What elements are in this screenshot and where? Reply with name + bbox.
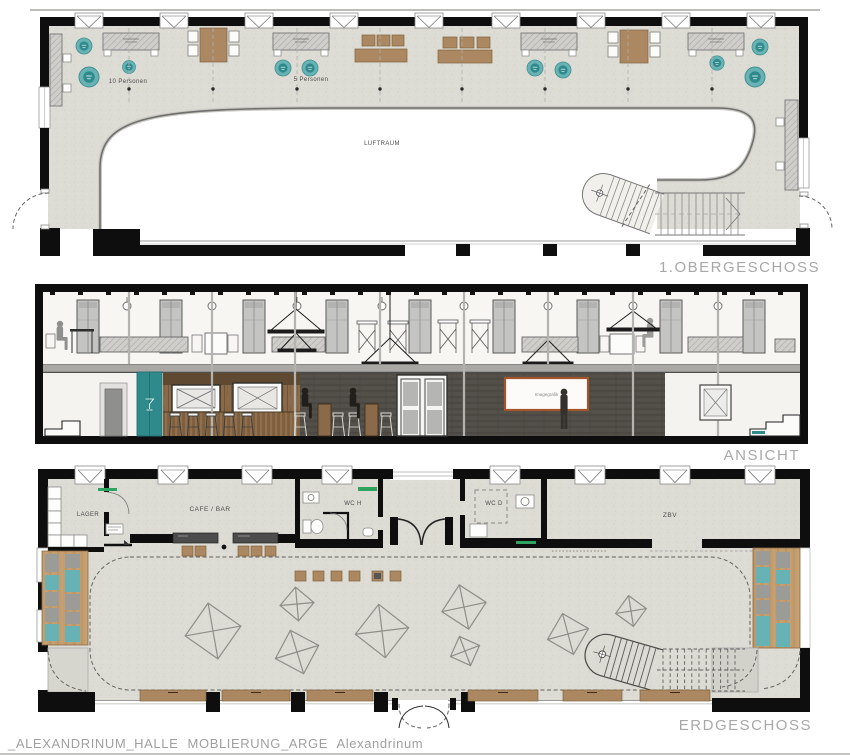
bench-unit-west [42, 551, 88, 645]
door-swing [13, 193, 49, 229]
teal-door [137, 372, 162, 436]
urinal [363, 528, 373, 536]
room-label-lager: LAGER [77, 512, 100, 518]
drawing-canvas: 10 Personen 5 Personen LUFTRAUM 1.OBERGE… [0, 0, 850, 755]
bench-unit-east [753, 548, 800, 648]
room-label-zbv: ZBV [663, 512, 677, 519]
sink [516, 495, 534, 508]
bar-counter [173, 533, 218, 543]
wall-window-frame [700, 385, 731, 420]
hall-floor [48, 479, 800, 700]
gray-door [100, 383, 127, 436]
teal-step [752, 431, 765, 434]
room-label-wc-women: WC D [485, 501, 503, 507]
elevation-ansicht: Imagegrafik ANSICHT [35, 284, 808, 464]
green-mark [358, 487, 377, 491]
screen-label: Imagegrafik [535, 392, 559, 397]
green-mark [516, 541, 536, 544]
seating-label-ten: 10 Personen [109, 79, 147, 85]
bar-counter [233, 533, 278, 543]
green-mark [98, 488, 117, 491]
seating-label-five: 5 Personen [294, 77, 329, 83]
table-cluster [438, 37, 492, 63]
framed-panel [233, 383, 282, 413]
projection-screen: Imagegrafik [505, 378, 588, 410]
panel-title-erdgeschoss: ERDGESCHOSS [679, 717, 812, 734]
room-label-cafe: CAFE / BAR [189, 506, 230, 513]
west-wall [13, 17, 50, 229]
void-label: LUFTRAUM [364, 141, 400, 147]
east-wall [798, 17, 832, 229]
north-entrance [388, 468, 458, 480]
south-entrance-door [399, 704, 449, 728]
architecture-sheet: 10 Personen 5 Personen LUFTRAUM 1.OBERGE… [0, 0, 850, 755]
room-label-wc-men: WC H [344, 501, 362, 507]
sheet-caption: _ALEXANDRINUM_HALLE MOBLIERUNG_ARGE Alex… [7, 736, 423, 751]
high-table [365, 404, 378, 436]
column-dot [222, 545, 227, 550]
south-wall [40, 228, 810, 256]
panel-title-ansicht: ANSICHT [724, 447, 800, 464]
plan-erdgeschoss: LAGER CAFE / BAR [37, 466, 812, 734]
panel-title-obergeschoss: 1.OBERGESCHOSS [659, 259, 820, 276]
plan-obergeschoss: 10 Personen 5 Personen LUFTRAUM 1.OBERGE… [13, 10, 832, 276]
toilet [303, 520, 323, 534]
high-table [318, 404, 331, 436]
southwest-vestibule [48, 648, 88, 692]
double-door-elevation [397, 375, 447, 436]
sink [303, 492, 319, 503]
